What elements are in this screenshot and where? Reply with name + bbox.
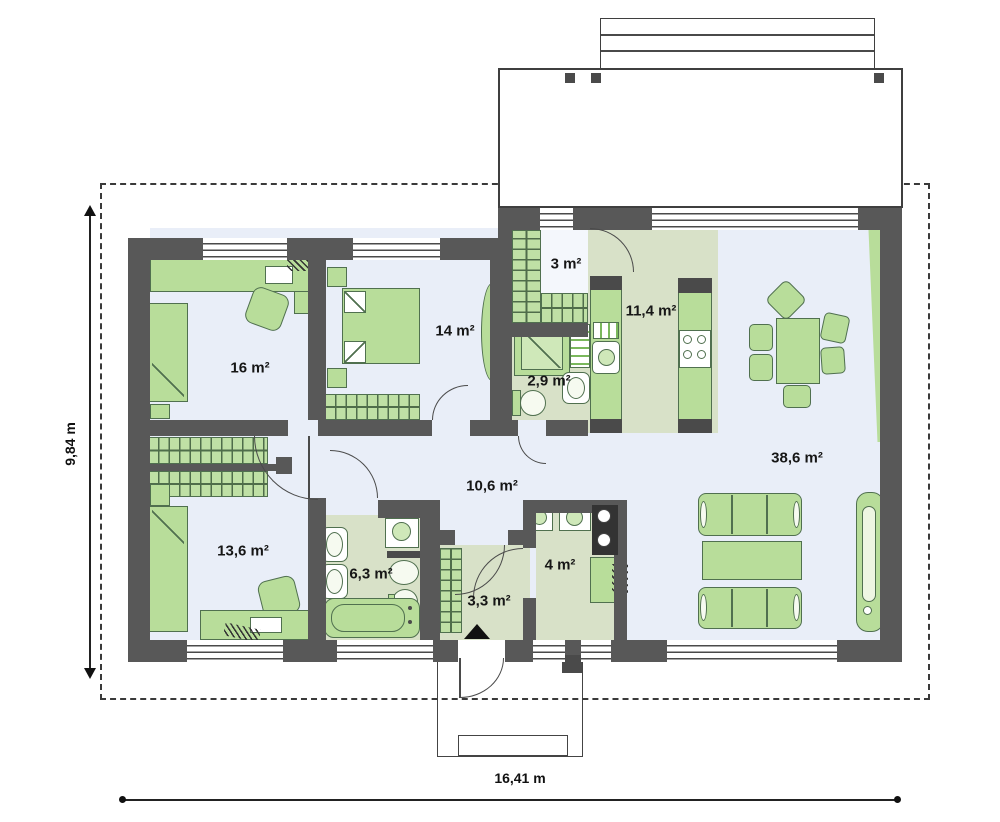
window [533, 640, 565, 662]
sink-basin [326, 532, 343, 557]
burner [697, 335, 706, 344]
room-label-bedroom-16: 16 m² [230, 360, 269, 377]
room-label-bedroom-14: 14 m² [435, 323, 474, 340]
room-label-hall: 10,6 m² [466, 478, 518, 495]
wall-segment [150, 420, 288, 436]
sofa-armrest [700, 594, 707, 621]
terrace-step-line [601, 50, 874, 52]
door-leaf [308, 436, 310, 498]
bed-pillow-fold [152, 510, 184, 544]
room-label-closet: 3 m² [551, 256, 582, 273]
wardrobe [325, 394, 420, 420]
sofa-armrest [700, 501, 707, 528]
fireplace-inner [862, 506, 876, 602]
wall-segment [546, 420, 588, 436]
bathtub-tap [408, 606, 412, 610]
wall-segment [318, 420, 432, 436]
window [187, 640, 283, 662]
sink-basin [326, 569, 343, 594]
nightstand [327, 368, 347, 388]
dining-table [776, 318, 820, 384]
sink [389, 560, 419, 585]
dining-chair [820, 346, 846, 375]
wall-segment [420, 500, 440, 640]
entrance-step [458, 735, 568, 756]
wall-top-left [128, 238, 512, 260]
counter-cap [678, 419, 712, 433]
room-label-entry: 3,3 m² [467, 593, 510, 610]
fireplace-vent [863, 606, 872, 615]
wardrobe [148, 437, 268, 464]
burner [683, 350, 692, 359]
washer-drum [392, 522, 411, 541]
counter-cap [678, 278, 712, 293]
shower-arrow [523, 332, 561, 368]
pillow-fold [345, 292, 365, 312]
window [353, 238, 440, 260]
bathtub-inner [331, 604, 405, 632]
burner [697, 350, 706, 359]
burner [683, 335, 692, 344]
nightstand [150, 404, 170, 419]
wardrobe [512, 230, 541, 323]
nightstand [150, 484, 170, 506]
toilet [520, 390, 546, 416]
window [540, 208, 573, 230]
sofa-armrest [793, 501, 800, 528]
room-label-bath-small: 2,9 m² [527, 373, 570, 390]
door-leaf [459, 658, 461, 698]
sink-bowl [598, 349, 615, 366]
coffee-table [702, 541, 802, 580]
pillow-fold [345, 342, 365, 362]
terrace-post [874, 73, 884, 83]
sofa-seam [766, 589, 768, 627]
sofa [698, 587, 802, 629]
dimension-arrow-down [84, 668, 96, 679]
counter-cap [590, 419, 622, 433]
sofa-seam [766, 495, 768, 534]
terrace [498, 68, 903, 208]
dimension-dot [119, 796, 126, 803]
nightstand [327, 267, 347, 287]
dining-chair [783, 385, 811, 408]
dimension-line-height [89, 212, 91, 672]
wall-segment [523, 513, 536, 548]
sofa-seam [731, 495, 733, 534]
sofa-armrest [793, 594, 800, 621]
room-label-living: 38,6 m² [771, 450, 823, 467]
terrace-step-line [601, 34, 874, 36]
shelf [387, 551, 420, 558]
entrance-arrow-icon [464, 624, 490, 639]
boiler-burner [597, 533, 611, 547]
wall-segment [148, 464, 278, 471]
terrace-post [565, 73, 575, 83]
wall-segment [428, 530, 455, 545]
room-label-kitchen: 11,4 m² [626, 303, 677, 320]
dimension-dot [894, 796, 901, 803]
wall-segment [523, 598, 536, 640]
wall-segment [470, 420, 518, 436]
wall-right [880, 208, 902, 662]
window-terrace [652, 208, 858, 230]
room-label-bedroom-136: 13,6 m² [217, 543, 269, 560]
dimension-arrow-up [84, 205, 96, 216]
terrace-steps [600, 18, 875, 69]
wall-segment [308, 498, 326, 640]
dish-rack [593, 322, 619, 339]
floor-plan: 16 m² 14 m² 3 m² 11,4 m² 2,9 m² 38,6 m² … [0, 0, 1000, 822]
window [667, 640, 837, 662]
window [581, 640, 611, 662]
sofa-seam [731, 589, 733, 627]
wall-segment [512, 323, 588, 337]
wall-segment [378, 500, 423, 518]
terrace-post [591, 73, 601, 83]
sofa [698, 493, 802, 536]
boiler-burner [597, 509, 611, 523]
wall-segment [308, 260, 326, 420]
room-label-bathroom: 6,3 m² [349, 566, 392, 583]
dimension-width-label: 16,41 m [494, 770, 545, 786]
window [203, 238, 287, 260]
room-label-utility: 4 m² [545, 557, 576, 574]
counter-cap [590, 276, 622, 290]
wardrobe [541, 293, 588, 323]
bathtub-tap [408, 620, 412, 624]
window [337, 640, 433, 662]
wall-left [128, 238, 150, 662]
dimension-line-width [122, 799, 898, 801]
dimension-height-label: 9,84 m [62, 422, 78, 466]
dining-chair [749, 354, 773, 381]
dining-chair [749, 324, 773, 351]
porch-post [562, 655, 582, 673]
wall-segment [490, 260, 512, 420]
bed-pillow-fold [152, 362, 184, 398]
